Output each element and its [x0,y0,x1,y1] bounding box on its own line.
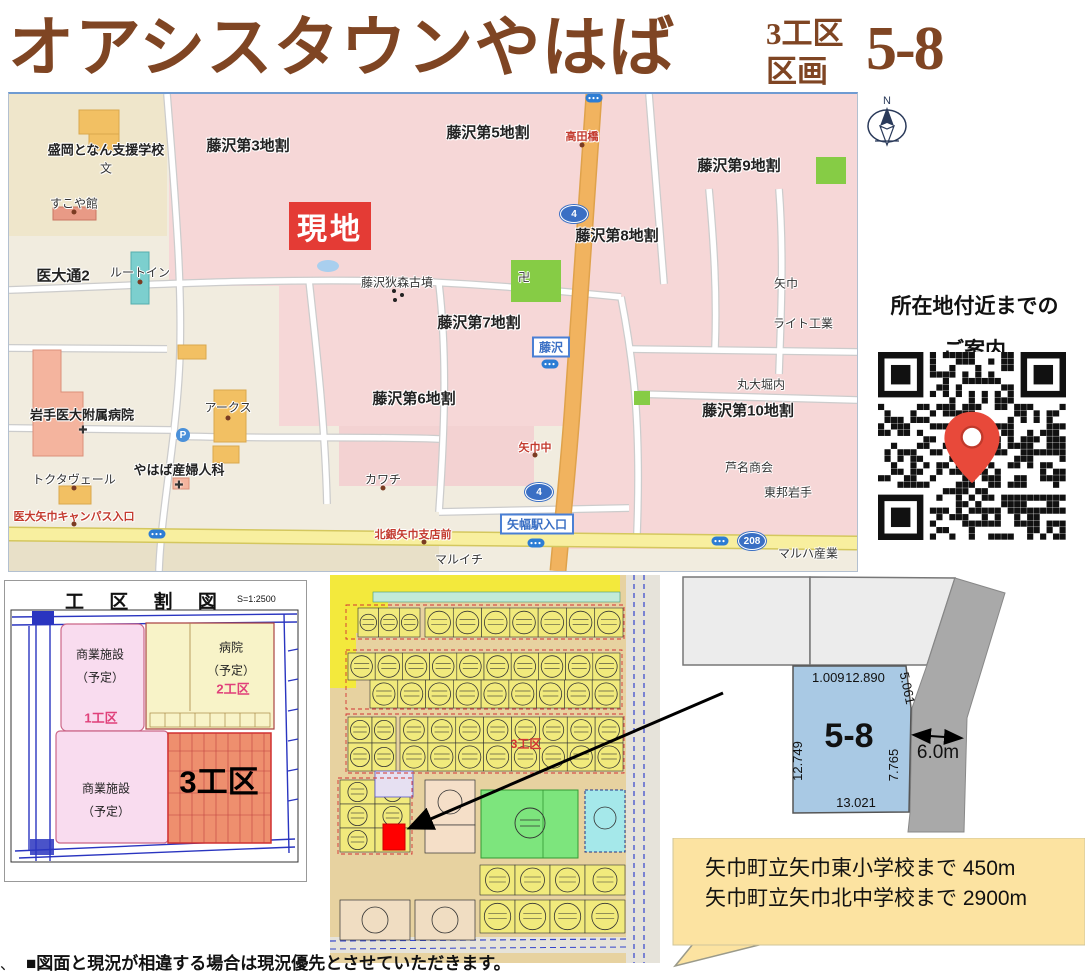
map-label: ルートイン [110,264,170,281]
dim-bottom: 13.021 [836,795,876,810]
guide-line1: 所在地付近までの [872,285,1077,329]
kofun-dot [392,289,396,293]
poi-dot [580,143,585,148]
school-distance-2: 矢巾町立矢巾北中学校まで 2900m [705,884,1027,914]
temple-mark: 卍 [518,269,530,286]
district-label: 藤沢第9地割 [697,155,780,176]
map-label: 芦名商会 [725,459,773,476]
zone3-name: 商業施設 [82,780,130,797]
info-bubble: 矢巾町立矢巾東小学校まで 450m 矢巾町立矢巾北中学校まで 2900m [673,838,1085,945]
qr-code [878,352,1066,542]
zone2-tag: 2工区 [216,679,249,698]
zone4-tag: 3工区 [179,757,258,802]
section-label: 区画 [766,46,828,91]
map-label: マルハ産業 [778,545,838,562]
district-label: 藤沢第8地割 [575,225,658,246]
signal-icon: ●●● [149,530,166,539]
poi-dot [72,522,77,527]
parking-icon: P [176,428,190,442]
poi-dot [72,210,77,215]
road-width-label: 6.0m [917,742,959,763]
poi-dot [72,486,77,491]
map-label: 医大通2 [36,265,89,286]
poi-dot [226,416,231,421]
map-label: マルイチ [435,551,483,568]
map-label: やはば産婦人科 [133,460,224,479]
hospital-icon: ✚ [78,424,87,437]
route-badge: 4 [560,205,588,223]
lot-diagram-number: 5-8 [824,717,873,755]
map-label: 盛岡となん支援学校 [48,140,165,159]
zone1-sub: （予定） [76,669,124,686]
lot-map-zone-tag: 3工区 [511,737,542,751]
poi-dot [422,540,427,545]
page-title: オアシスタウンやはば [8,0,675,90]
map-label: アークス [205,399,252,416]
dim-left: 12.749 [790,741,805,781]
school-mark: 文 [100,160,112,177]
dim-top: 12.890 [845,670,885,685]
disclaimer-text: ■図面と現況が相違する場合は現況優先とさせていただきます。 [26,949,511,974]
district-label: 藤沢第3地割 [206,135,289,156]
map-label: 岩手医大附属病院 [30,405,134,424]
zone2-sub: （予定） [207,662,255,679]
map-label: 藤沢狄森古墳 [361,274,433,291]
zone1-name: 商業施設 [76,646,124,663]
clinic-icon: ✚ [174,479,183,492]
signal-icon: ●●● [712,537,729,546]
district-label: 藤沢第7地割 [437,312,520,333]
corner-mark: 、 [0,953,15,974]
poi-dot [138,280,143,285]
zone2-name: 病院 [219,639,243,656]
station-sign: 藤沢 [532,337,570,358]
district-label: 藤沢第5地割 [446,122,529,143]
station-sign: 矢幅駅入口 [500,514,574,535]
dim-top-left: 1.009 [812,670,845,685]
poi-dot [381,486,386,491]
school-distance-1: 矢巾町立矢巾東小学校まで 450m [705,854,1027,884]
route-badge: 4 [525,483,553,501]
map-label: ライト工業 [773,315,833,332]
poi-dot [533,453,538,458]
map-label: 矢巾 [774,275,798,292]
svg-text:N: N [883,95,891,107]
kofun-dot [400,293,404,297]
area-map: 盛岡となん支援学校 文 すこや館 医大通2 ルートイン 藤沢第3地割 藤沢第5地… [8,92,858,572]
district-label: 藤沢第10地割 [702,400,794,421]
map-label: 東邦岩手 [764,484,812,501]
route-badge: 208 [738,532,766,550]
lot-diagram: 1.009 12.890 5.061 12.749 7.765 13.021 5… [660,575,1087,837]
dim-right: 7.765 [886,749,901,782]
zone1-tag: 1工区 [84,708,117,727]
site-marker: 現地 [289,202,371,250]
compass-icon: N [860,93,916,153]
signal-icon: ●●● [528,539,545,548]
division-map-drawing [5,581,306,881]
district-label: 藤沢第6地割 [372,388,455,409]
detailed-lot-map: 3工区 [330,575,660,963]
lot-number: 5-8 [866,14,943,85]
kofun-dot [393,298,397,302]
signal-icon: ●●● [586,94,603,103]
map-label-red: 北銀矢巾支店前 [375,526,452,542]
signal-icon: ●●● [542,360,559,369]
highlighted-lot [383,824,405,850]
map-label: 丸大堀内 [737,376,785,393]
division-map-panel: 工 区 割 図 S=1:2500 [4,580,307,882]
zone3-sub: （予定） [82,803,130,820]
